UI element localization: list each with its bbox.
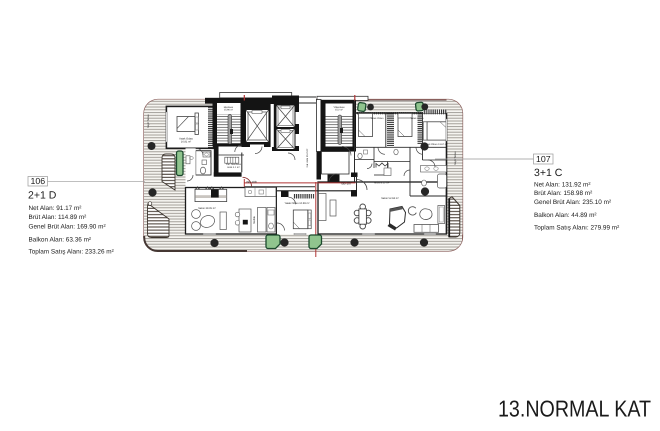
svg-text:3+1 C: 3+1 C: [534, 167, 563, 179]
svg-text:15.96 m²: 15.96 m²: [224, 109, 233, 112]
svg-text:Salon 52.84 m²: Salon 52.84 m²: [381, 197, 399, 200]
svg-text:Net Alan: 131.92 m²: Net Alan: 131.92 m²: [534, 182, 590, 189]
svg-text:Salon 38.95 m²: Salon 38.95 m²: [198, 207, 216, 210]
svg-text:13.NORMAL KAT: 13.NORMAL KAT: [498, 396, 651, 422]
svg-text:BB-107: BB-107: [342, 182, 352, 186]
svg-text:Mutfak: Mutfak: [253, 215, 256, 223]
svg-text:Toplam Satış Alanı: 233.26 m²: Toplam Satış Alanı: 233.26 m²: [29, 248, 114, 255]
svg-text:Seyir Terası: Seyir Terası: [147, 114, 150, 128]
svg-text:Genel Brüt Alan: 169.90 m²: Genel Brüt Alan: 169.90 m²: [29, 223, 106, 230]
svg-text:Brüt Alan: 158.98 m²: Brüt Alan: 158.98 m²: [534, 190, 592, 197]
svg-text:Seyir Terası: Seyir Terası: [454, 151, 457, 165]
svg-text:Balkon Alan: 44.89 m²: Balkon Alan: 44.89 m²: [534, 212, 597, 219]
svg-text:Y.Merdiven: Y.Merdiven: [333, 106, 345, 109]
svg-text:Toplam Satış Alanı: 279.99 m²: Toplam Satış Alanı: 279.99 m²: [534, 225, 619, 232]
svg-text:Balkon Alan: 63.36 m²: Balkon Alan: 63.36 m²: [29, 236, 92, 243]
svg-text:Merdiven: Merdiven: [224, 106, 234, 109]
svg-text:Net Alan: 91.17 m²: Net Alan: 91.17 m²: [29, 205, 82, 212]
svg-text:Yatak Odası: Yatak Odası: [371, 117, 384, 120]
svg-text:Kat Holü 15.2 m²: Kat Holü 15.2 m²: [306, 148, 309, 167]
svg-text:107: 107: [536, 154, 551, 164]
svg-text:Yatak Odası 10.89 m²: Yatak Odası 10.89 m²: [284, 202, 309, 205]
svg-text:Genel Brüt Alan: 235.10 m²: Genel Brüt Alan: 235.10 m²: [534, 199, 611, 206]
svg-text:15.2 m²: 15.2 m²: [335, 109, 343, 112]
svg-text:Holü 4.1 m²: Holü 4.1 m²: [227, 166, 240, 169]
svg-text:Antre 8.12 m²: Antre 8.12 m²: [374, 182, 389, 185]
svg-text:2+1 D: 2+1 D: [28, 190, 57, 202]
svg-text:BB-108: BB-108: [247, 180, 257, 184]
svg-text:Brüt Alan: 114.89 m²: Brüt Alan: 114.89 m²: [29, 214, 87, 221]
svg-text:16.81 m²: 16.81 m²: [181, 141, 191, 144]
svg-text:106: 106: [31, 176, 46, 186]
